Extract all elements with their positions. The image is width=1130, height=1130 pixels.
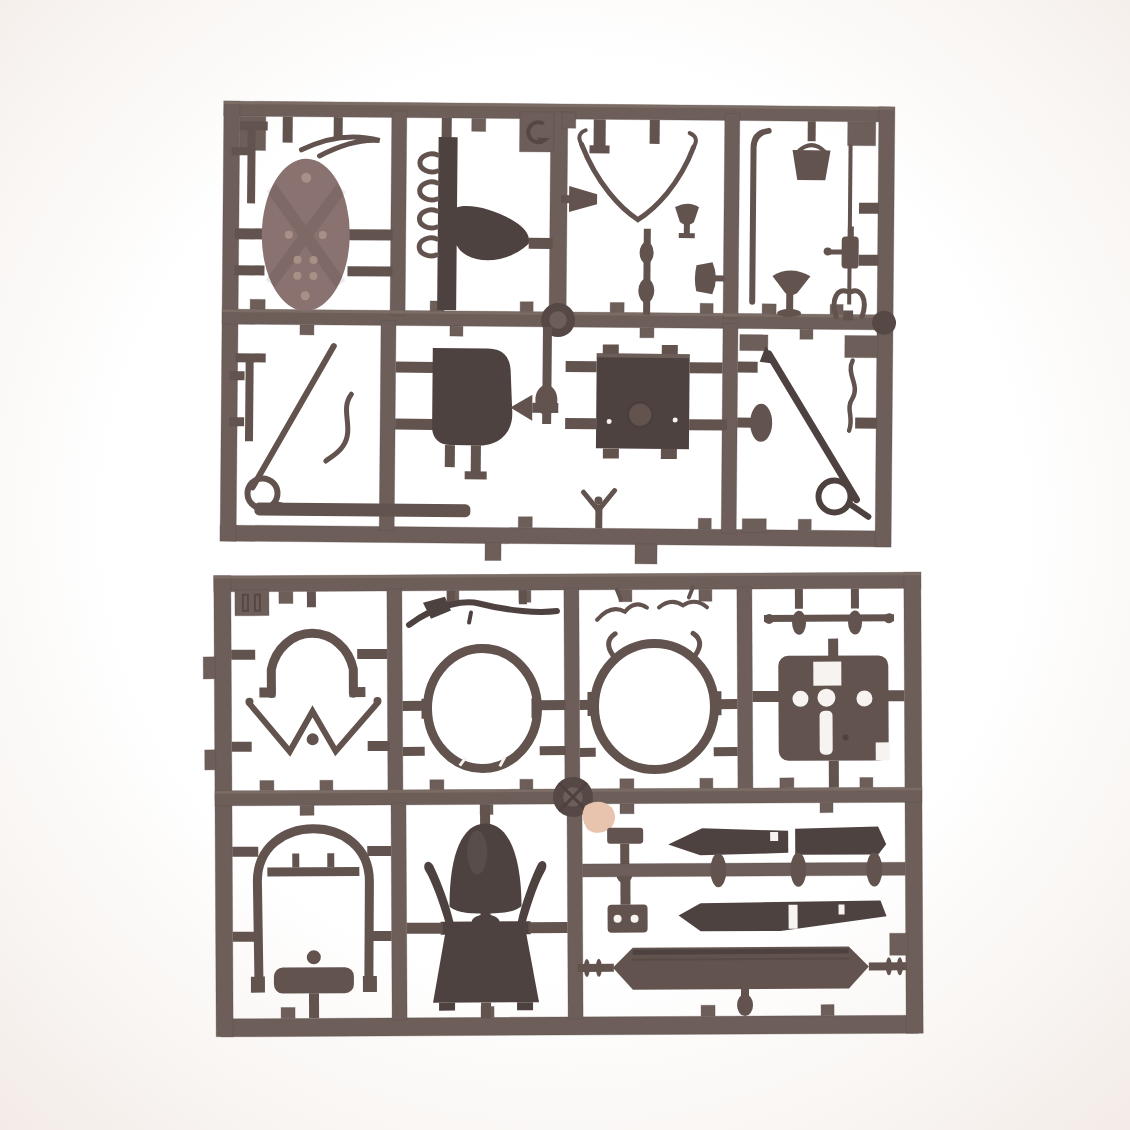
whip-stick-part	[282, 117, 379, 157]
canopy-frame-part	[232, 828, 392, 1018]
antler-trim-part	[597, 587, 707, 620]
wavy-bracket-part	[849, 361, 855, 431]
junction-disc-right	[872, 311, 896, 335]
bell-funnel-part	[772, 270, 810, 317]
floor-plank-part	[254, 502, 470, 517]
axle-wishbone-part	[231, 697, 389, 752]
bucket-part	[792, 121, 831, 180]
sub-runner	[582, 862, 905, 877]
stub	[738, 362, 758, 373]
cane-rod-part	[752, 131, 768, 302]
goblet-fitting-part	[674, 204, 725, 295]
strongbox-part	[565, 344, 728, 459]
spindle-bar-part	[764, 588, 894, 635]
stub	[859, 255, 879, 266]
mushroom-part	[737, 404, 772, 442]
hole-bracket-part	[607, 877, 647, 933]
embossed-tab-lower	[235, 590, 269, 616]
wishbone-yoke-part	[579, 119, 696, 220]
oval-hoop-left-part	[402, 644, 566, 769]
musket-part	[409, 590, 557, 625]
s-hook-part	[326, 394, 352, 461]
sprue-photo	[0, 0, 1130, 1130]
photo-canvas	[0, 0, 1130, 1130]
bucket-seat-part	[395, 348, 513, 480]
lower-sprue	[203, 572, 923, 1037]
drilled-plate-part	[752, 638, 905, 788]
stub	[855, 418, 877, 429]
upper-sprue	[220, 101, 898, 566]
tiny-figure-part	[583, 490, 614, 528]
diagonal-rod-ring-part	[247, 345, 333, 510]
bottle-rod-part	[823, 144, 859, 304]
shield-part	[234, 158, 393, 311]
stub	[859, 203, 879, 214]
baluster-rod-part	[638, 229, 655, 315]
oval-hoop-right-part	[579, 633, 738, 770]
hull-beam-part	[578, 946, 907, 1017]
plunger-part	[535, 327, 558, 424]
plank-blade-parts	[668, 826, 887, 931]
dome-part	[449, 804, 522, 930]
